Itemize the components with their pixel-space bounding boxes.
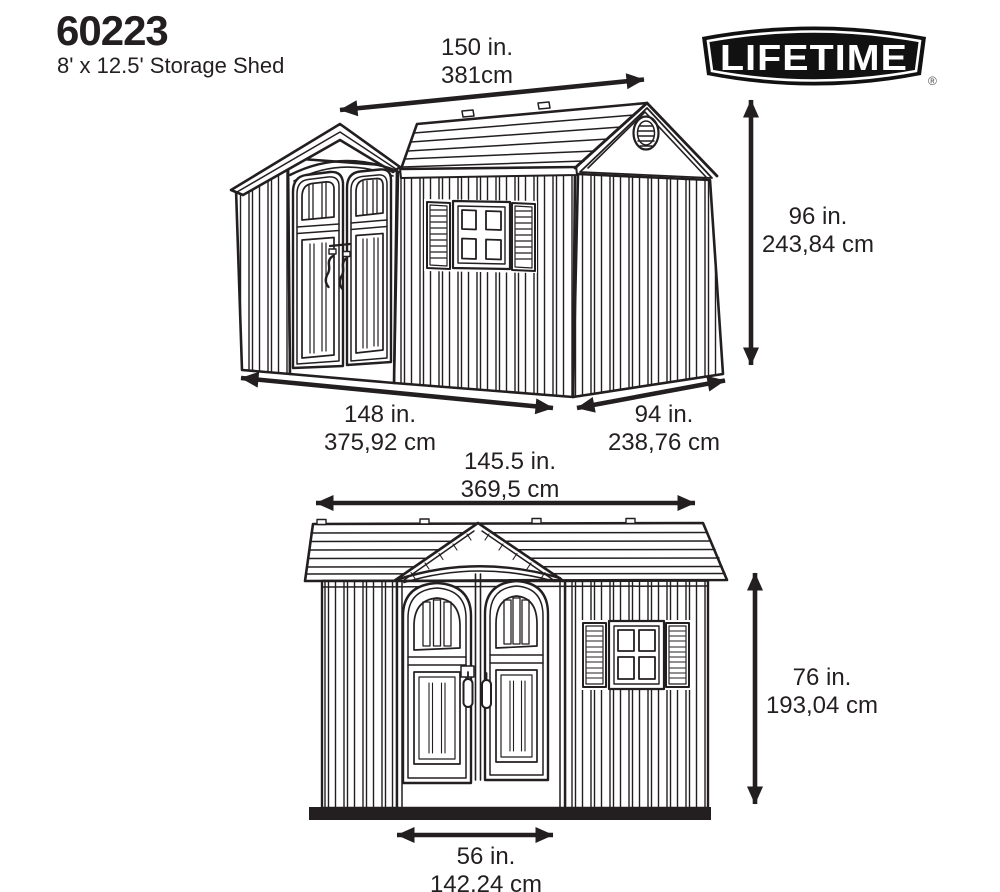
door-right xyxy=(347,169,391,365)
door-left xyxy=(293,172,343,368)
dim-value-cm: 243,84 cm xyxy=(708,231,928,259)
front-shed-drawing xyxy=(305,519,727,821)
model-number: 60223 xyxy=(56,8,168,54)
dim-label-width-145: 145.5 in. 369,5 cm xyxy=(400,448,620,504)
door-left xyxy=(403,583,471,783)
side-window xyxy=(424,199,537,273)
dim-value-in: 145.5 in. xyxy=(400,448,620,476)
line-art xyxy=(0,0,1000,892)
dim-value-cm: 369,5 cm xyxy=(400,476,620,504)
logo-text: LIFETIME xyxy=(720,37,908,78)
dim-label-height-76: 76 in. 193,04 cm xyxy=(712,664,932,720)
dim-value-cm: 142,24 cm xyxy=(376,871,596,892)
front-window xyxy=(579,620,692,690)
shed-dimensions-diagram: 60223 8' x 12.5' Storage Shed LIFETIME ®… xyxy=(0,0,1000,892)
dim-value-in: 76 in. xyxy=(712,664,932,692)
side-wall xyxy=(573,174,723,397)
dim-value-cm: 381cm xyxy=(367,62,587,90)
dim-value-in: 150 in. xyxy=(367,34,587,62)
perspective-shed-drawing xyxy=(231,102,723,397)
dim-value-in: 56 in. xyxy=(376,843,596,871)
dim-value-in: 96 in. xyxy=(708,203,928,231)
base-bar xyxy=(309,807,711,820)
lifetime-logo: LIFETIME xyxy=(692,20,936,90)
door-right xyxy=(485,581,548,780)
dim-value-in: 94 in. xyxy=(554,401,774,429)
product-name: 8' x 12.5' Storage Shed xyxy=(57,53,284,79)
dim-value-in: 148 in. xyxy=(270,401,490,429)
dim-label-height-96: 96 in. 243,84 cm xyxy=(708,203,928,259)
dim-label-roof-length: 150 in. 381cm xyxy=(367,34,587,90)
dim-value-cm: 193,04 cm xyxy=(712,692,932,720)
dim-label-door-56: 56 in. 142,24 cm xyxy=(376,843,596,892)
registered-trademark: ® xyxy=(928,74,937,88)
wall-right xyxy=(565,581,708,809)
wall-left xyxy=(322,581,397,808)
